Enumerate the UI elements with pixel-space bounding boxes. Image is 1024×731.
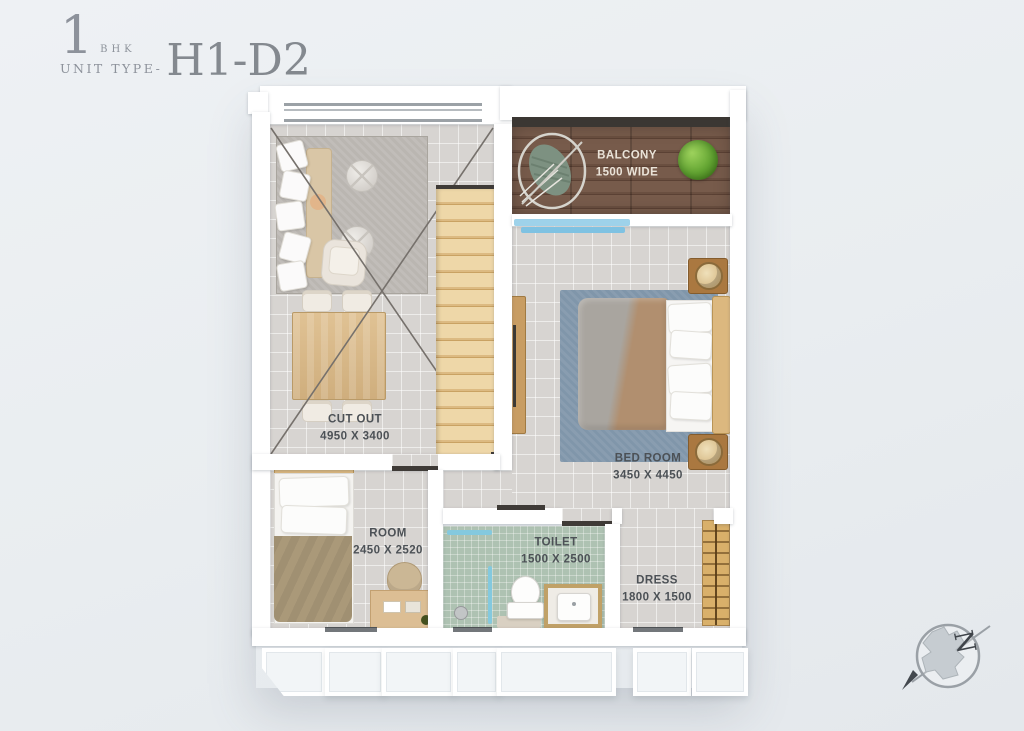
bed-pillow	[669, 330, 713, 361]
desk-paper	[383, 601, 401, 613]
label-cutout-name: CUT OUT	[320, 411, 390, 428]
desk	[370, 590, 435, 630]
title-left: 1 BHK UNIT TYPE-	[60, 14, 162, 76]
shower-glass	[488, 566, 492, 624]
label-balcony-name: BALCONY	[596, 147, 658, 164]
toilet-wc-tank	[507, 602, 544, 619]
console-decor	[513, 325, 516, 407]
table-lamp	[695, 262, 723, 290]
wall-stub	[714, 508, 733, 524]
sink	[557, 593, 591, 621]
bed-blanket	[578, 298, 668, 430]
wall-living-room	[252, 454, 500, 470]
ledge	[325, 648, 385, 696]
staircase	[436, 188, 496, 456]
label-balcony: BALCONY 1500 WIDE	[596, 147, 658, 180]
title-number: 1	[60, 14, 93, 58]
label-bedroom: BED ROOM 3450 X 4450	[613, 450, 683, 483]
label-cutout-dims: 4950 X 3400	[320, 428, 390, 445]
vanity-counter	[544, 584, 602, 628]
wall-toilet-dress	[605, 524, 620, 632]
wall-top-notch	[248, 92, 268, 114]
title-unit-code: H1-D2	[166, 41, 311, 81]
label-dress-name: DRESS	[622, 572, 692, 589]
balcony-railing	[512, 117, 734, 127]
desk-laptop	[405, 601, 421, 613]
door-head-passage	[497, 505, 545, 510]
table-lamp	[695, 438, 723, 466]
label-toilet: TOILET 1500 X 2500	[521, 534, 591, 567]
ledge	[633, 648, 691, 696]
window-bottom	[453, 627, 492, 632]
label-dress-dims: 1800 X 1500	[622, 589, 692, 606]
wall-stub	[612, 508, 622, 524]
ledge	[382, 648, 455, 696]
stair-rail	[436, 185, 496, 189]
ledge	[453, 648, 500, 696]
window-mullion	[284, 109, 482, 111]
window-bottom	[633, 627, 683, 632]
faucet	[572, 602, 576, 606]
bed-pillow	[278, 476, 349, 508]
ledge	[497, 648, 616, 696]
sliding-door-glass	[521, 227, 625, 233]
wall-left	[252, 112, 270, 636]
hanging-chair	[512, 126, 592, 214]
label-toilet-dims: 1500 X 2500	[521, 551, 591, 568]
plan-title: 1 BHK UNIT TYPE- H1-D2	[60, 14, 311, 76]
wall-right	[730, 90, 746, 642]
window-living	[284, 103, 482, 122]
window-bottom	[325, 627, 377, 632]
title-unit-type: UNIT TYPE-	[60, 61, 162, 76]
title-bhk: BHK	[100, 44, 136, 55]
label-bedroom-name: BED ROOM	[613, 450, 683, 467]
balcony-plant	[678, 140, 718, 180]
bed-pillow	[281, 505, 348, 535]
label-room: ROOM 2450 X 2520	[353, 525, 423, 558]
wall-top-balcony	[500, 86, 746, 120]
label-cutout: CUT OUT 4950 X 3400	[320, 411, 390, 444]
wardrobe	[702, 520, 730, 626]
shower-glass	[447, 530, 492, 535]
ledge	[692, 648, 748, 696]
label-room-name: ROOM	[353, 525, 423, 542]
wall-bedroom-toilet	[443, 508, 562, 524]
label-balcony-dims: 1500 WIDE	[596, 164, 658, 181]
bed-headboard	[712, 296, 731, 434]
label-dress: DRESS 1800 X 1500	[622, 572, 692, 605]
bed-pillow	[669, 391, 712, 421]
single-bed-blanket	[274, 536, 352, 622]
north-compass-icon: N	[898, 612, 998, 704]
ledge	[262, 648, 326, 696]
wall-room-toilet	[428, 470, 443, 632]
sliding-door-glass	[514, 219, 630, 226]
wall-mid-vertical	[494, 124, 512, 470]
label-toilet-name: TOILET	[521, 534, 591, 551]
label-room-dims: 2450 X 2520	[353, 542, 423, 559]
shower-head	[454, 606, 468, 620]
label-bedroom-dims: 3450 X 4450	[613, 467, 683, 484]
floor-plan-page: 1 BHK UNIT TYPE- H1-D2	[0, 0, 1024, 731]
